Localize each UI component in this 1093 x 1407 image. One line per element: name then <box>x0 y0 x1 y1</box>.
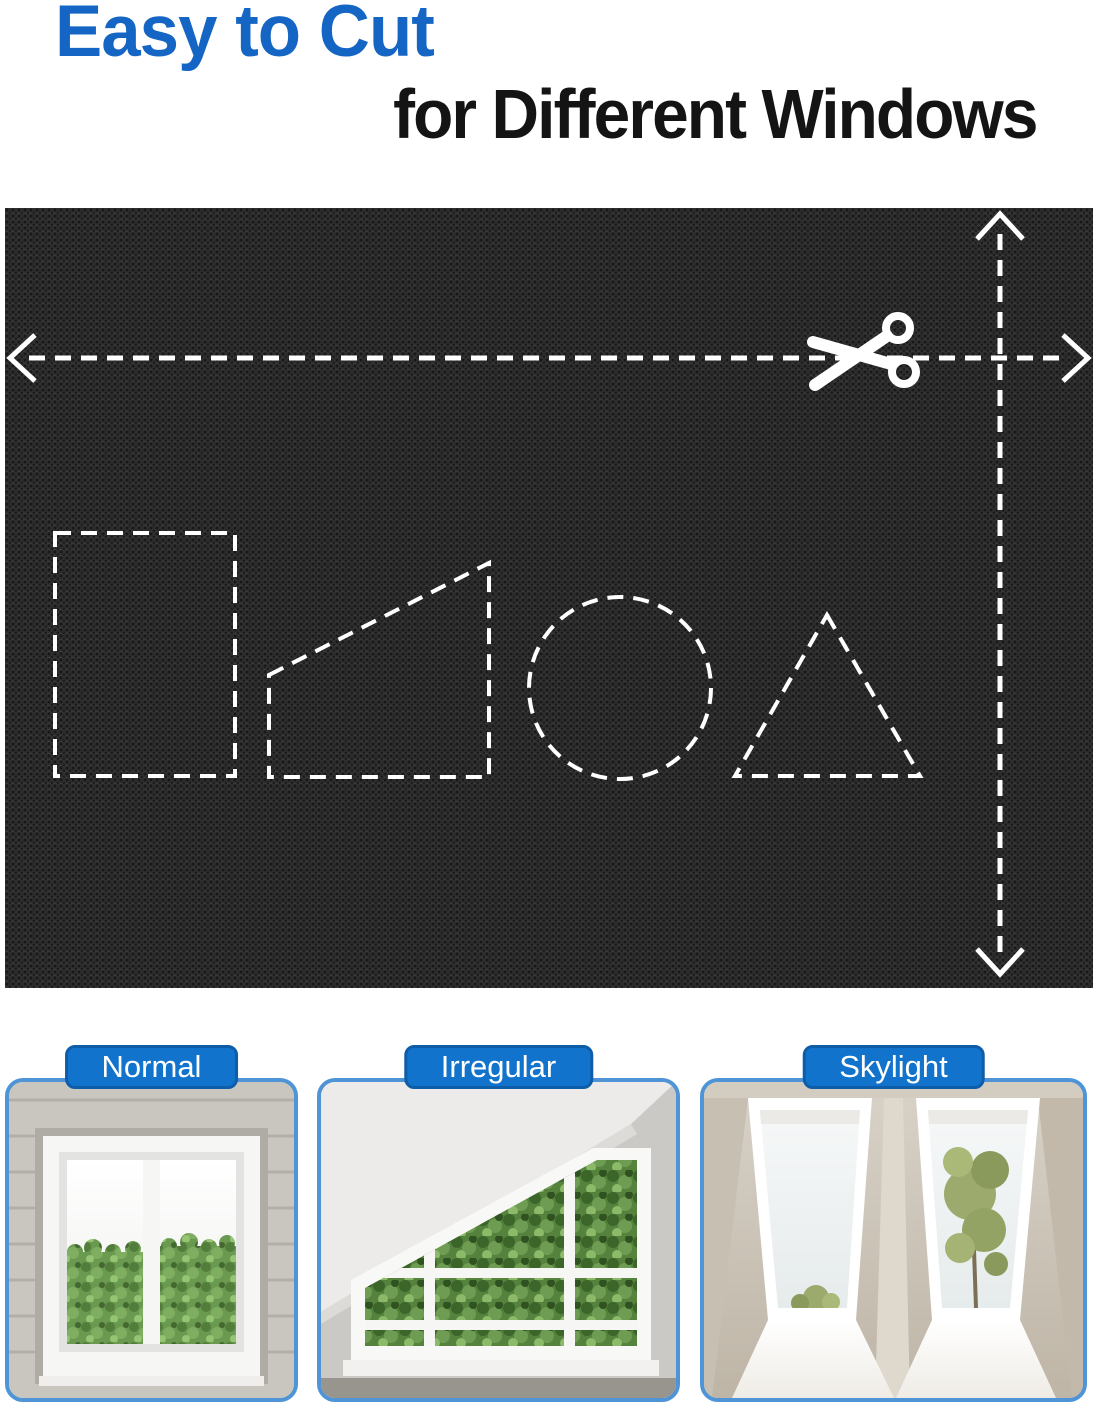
window-card-normal: Normal <box>5 1045 298 1405</box>
title-line2: for Different Windows <box>394 72 1037 156</box>
irregular-label: Irregular <box>441 1049 556 1084</box>
window-sill <box>343 1360 659 1376</box>
left-pane <box>67 1160 143 1344</box>
right-skylight <box>916 1098 1040 1320</box>
right-pane <box>160 1160 236 1344</box>
skylight-label-badge: Skylight <box>802 1045 985 1089</box>
window-sill <box>39 1376 264 1386</box>
skylight-window-photo <box>704 1082 1083 1398</box>
irregular-label-badge: Irregular <box>404 1045 593 1089</box>
fabric-swatch <box>5 208 1093 988</box>
skylight-label: Skylight <box>839 1049 948 1084</box>
cut-shape-triangle <box>735 615 920 776</box>
cut-shape-circle <box>529 597 711 779</box>
window-card-skylight: Skylight <box>700 1045 1087 1405</box>
cut-guides-overlay <box>5 208 1093 988</box>
center-mullion <box>143 1160 160 1344</box>
normal-label-badge: Normal <box>65 1045 239 1089</box>
product-infographic: Easy to Cut for Different Windows <box>0 0 1093 1407</box>
normal-label: Normal <box>102 1049 202 1084</box>
horizontal-cut-arrow <box>10 335 1088 381</box>
skylight-window-photo-frame <box>700 1078 1087 1402</box>
vertical-cut-arrow <box>977 214 1023 974</box>
normal-window-photo <box>9 1082 294 1398</box>
left-skylight <box>748 1098 872 1320</box>
normal-window-photo-frame <box>5 1078 298 1402</box>
irregular-window-photo <box>321 1082 676 1398</box>
title-line1: Easy to Cut <box>55 0 434 74</box>
cut-shape-rectangle <box>55 533 235 776</box>
irregular-window-photo-frame <box>317 1078 680 1402</box>
cut-shape-trapezoid <box>269 563 489 777</box>
scissors-icon <box>813 316 916 385</box>
window-card-irregular: Irregular <box>317 1045 680 1405</box>
